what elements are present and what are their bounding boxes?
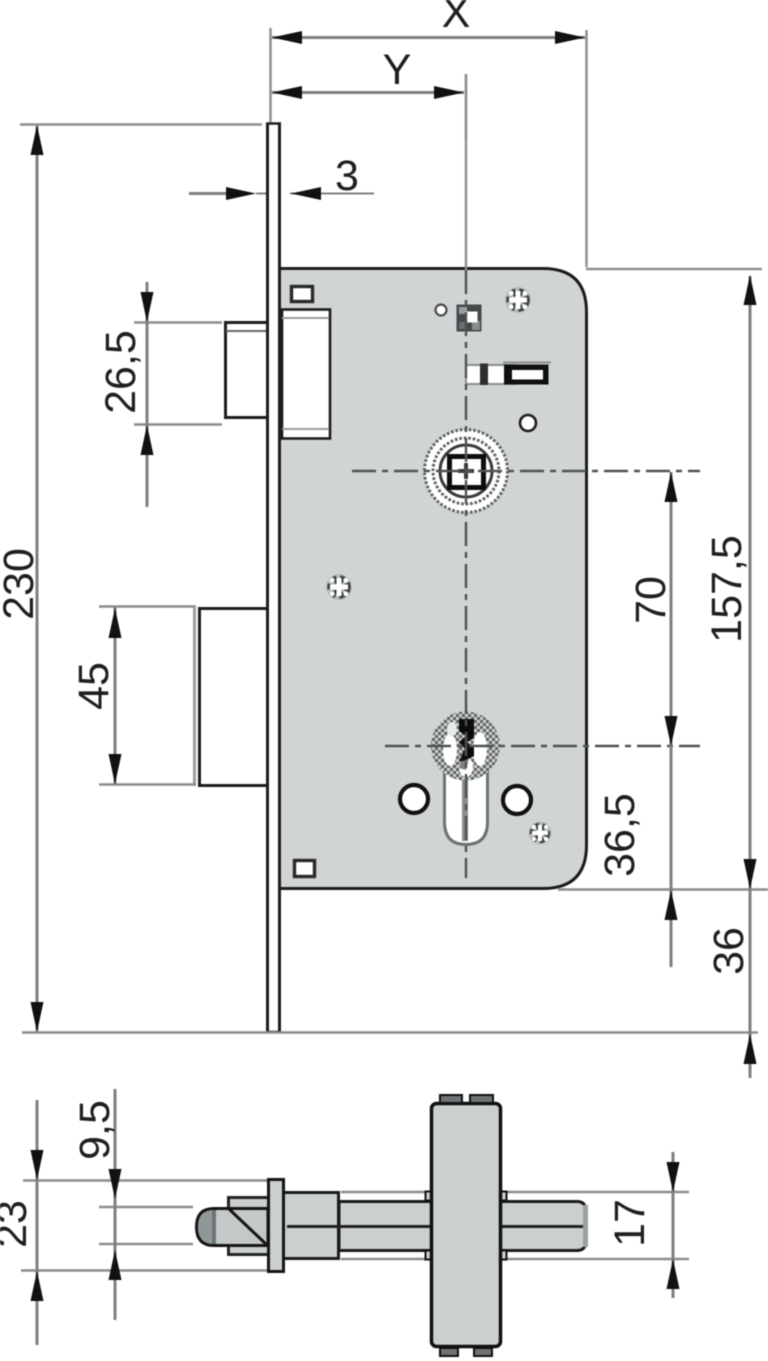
- svg-text:45: 45: [70, 662, 118, 710]
- svg-text:Y: Y: [383, 46, 412, 94]
- svg-text:X: X: [442, 0, 471, 37]
- svg-text:17: 17: [606, 1199, 654, 1247]
- svg-text:3: 3: [335, 152, 359, 200]
- svg-text:70: 70: [627, 576, 675, 624]
- svg-text:26,5: 26,5: [97, 330, 145, 414]
- svg-text:36,5: 36,5: [596, 793, 644, 877]
- svg-text:36: 36: [705, 927, 753, 975]
- svg-text:230: 230: [0, 548, 43, 620]
- svg-text:9,5: 9,5: [71, 1100, 119, 1160]
- svg-text:23: 23: [0, 1200, 36, 1248]
- svg-text:157,5: 157,5: [703, 535, 751, 643]
